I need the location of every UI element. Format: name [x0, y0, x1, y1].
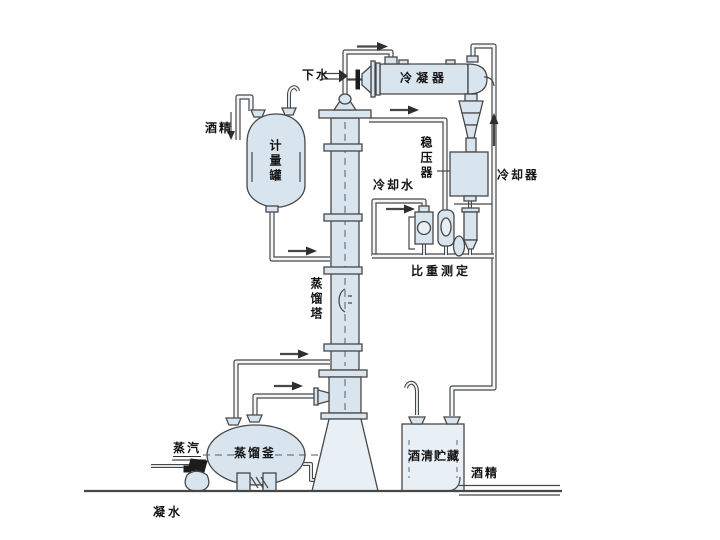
- steam-valve-assembly: [172, 459, 209, 491]
- label-alcohol-in: 酒精: [205, 122, 233, 135]
- diagram-linework: [0, 0, 720, 540]
- tube-instrument: [464, 212, 477, 240]
- condenser-inlet-nozzle: [385, 57, 397, 64]
- label-cooling-water: 冷却水: [373, 179, 415, 192]
- label-measuring-tank: 计量罐: [267, 139, 283, 184]
- label-distillation-kettle: 蒸馏釜: [234, 447, 276, 460]
- label-condenser: 冷凝器: [400, 72, 448, 85]
- gravity-measurement-instruments: [409, 204, 492, 256]
- label-condensate-water: 凝水: [153, 506, 183, 519]
- tower-flange: [324, 267, 362, 274]
- kettle-leg: [263, 473, 276, 491]
- tower-flange: [324, 144, 362, 151]
- label-pressure-stabilizer: 稳压器: [418, 136, 434, 181]
- cooler: [450, 152, 488, 201]
- tower-skirt: [312, 419, 378, 491]
- kettle-leg: [237, 473, 250, 491]
- label-down-water: 下水: [302, 69, 330, 82]
- tower-flange: [324, 214, 362, 221]
- label-gravity-measurement: 比重测定: [411, 265, 471, 278]
- label-alcohol-out: 酒精: [471, 467, 499, 480]
- label-alcohol-storage: 酒清贮藏: [408, 450, 460, 463]
- condensate-pot: [185, 471, 209, 491]
- label-steam: 蒸汽: [173, 442, 201, 457]
- process-diagram: 下水 冷凝器 酒精 计量罐 稳压器 冷却器 冷却水 比重测定 蒸馏塔 蒸馏釜 蒸…: [0, 0, 720, 540]
- tower-flange: [324, 344, 362, 351]
- hydrometer-bulb: [454, 236, 465, 256]
- label-distillation-tower: 蒸馏塔: [308, 277, 324, 322]
- condenser-valve: [356, 70, 360, 89]
- label-cooler: 冷却器: [497, 169, 539, 182]
